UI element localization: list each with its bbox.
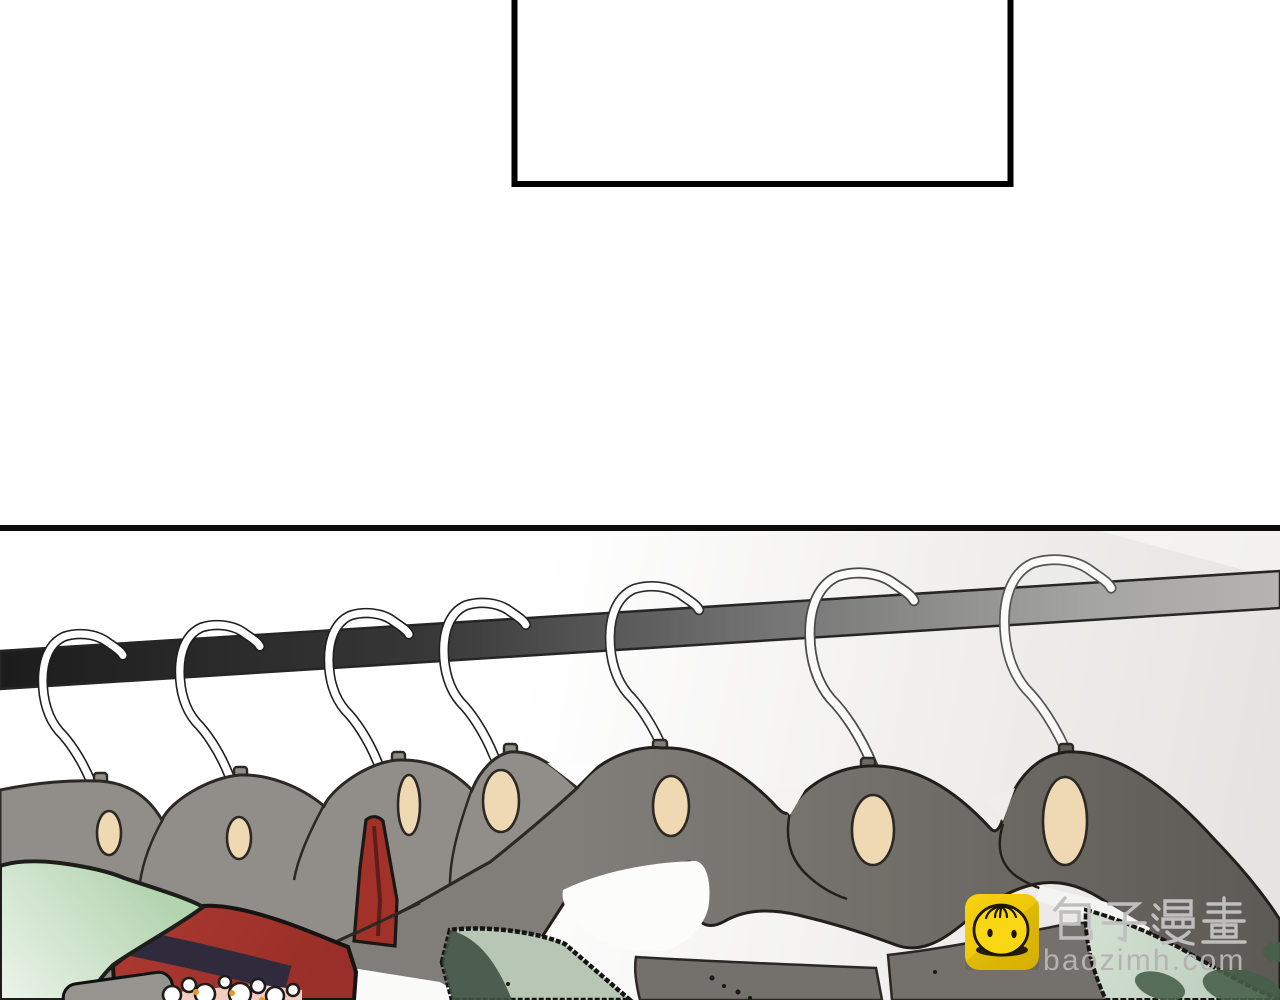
svg-text:baozimh.com: baozimh.com [1043,944,1246,977]
